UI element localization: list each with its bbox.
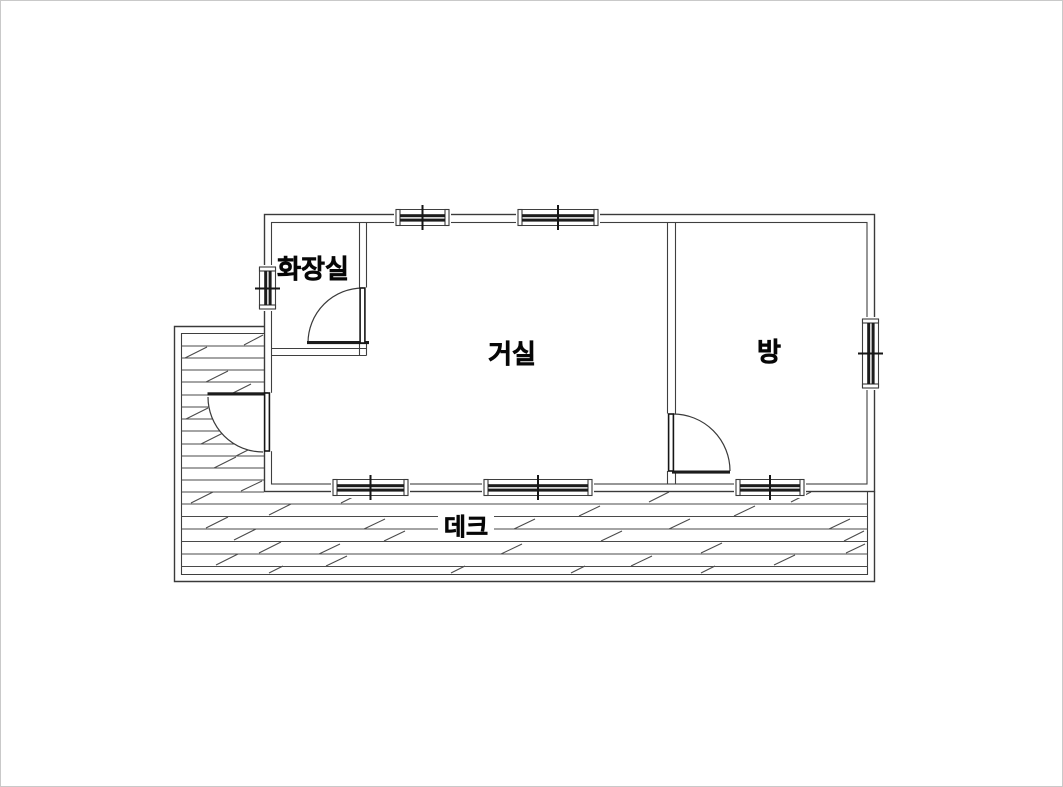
bathroom-label: 화장실 (277, 254, 349, 284)
window-bottom-1 (331, 475, 410, 500)
bedroom-door-frame-bar (669, 414, 674, 471)
living-room-label: 거실 (488, 339, 536, 369)
window-right-bedroom (858, 317, 883, 390)
window-top-2 (516, 205, 600, 230)
deck-plank-ticks (185, 335, 865, 573)
building-walls (265, 215, 875, 492)
exterior-wall-outer (265, 215, 875, 492)
bathroom-bottom-wall (272, 349, 367, 356)
bathroom-door-frame-bar (360, 288, 365, 343)
bedroom-door-leaf (672, 471, 730, 474)
front-door (208, 392, 270, 452)
bathroom-door (307, 288, 369, 344)
window-top-1 (394, 205, 451, 230)
floor-plan-page: 화장실 거실 방 데크 (0, 0, 1063, 787)
bedroom-label: 방 (757, 337, 781, 367)
deck-label: 데크 (444, 514, 488, 541)
bedroom-door (669, 414, 730, 474)
window-bottom-3 (734, 475, 806, 500)
bathroom-door-swing-area (308, 288, 363, 343)
bedroom-door-swing-area (673, 414, 730, 471)
window-bottom-2 (482, 475, 594, 500)
floor-plan-canvas: 화장실 거실 방 데크 (1, 1, 1063, 787)
front-door-leaf (208, 392, 269, 395)
front-door-frame-bar (265, 393, 270, 451)
deck-planks-bottom (182, 504, 868, 567)
deck-outline-inner (182, 334, 868, 575)
